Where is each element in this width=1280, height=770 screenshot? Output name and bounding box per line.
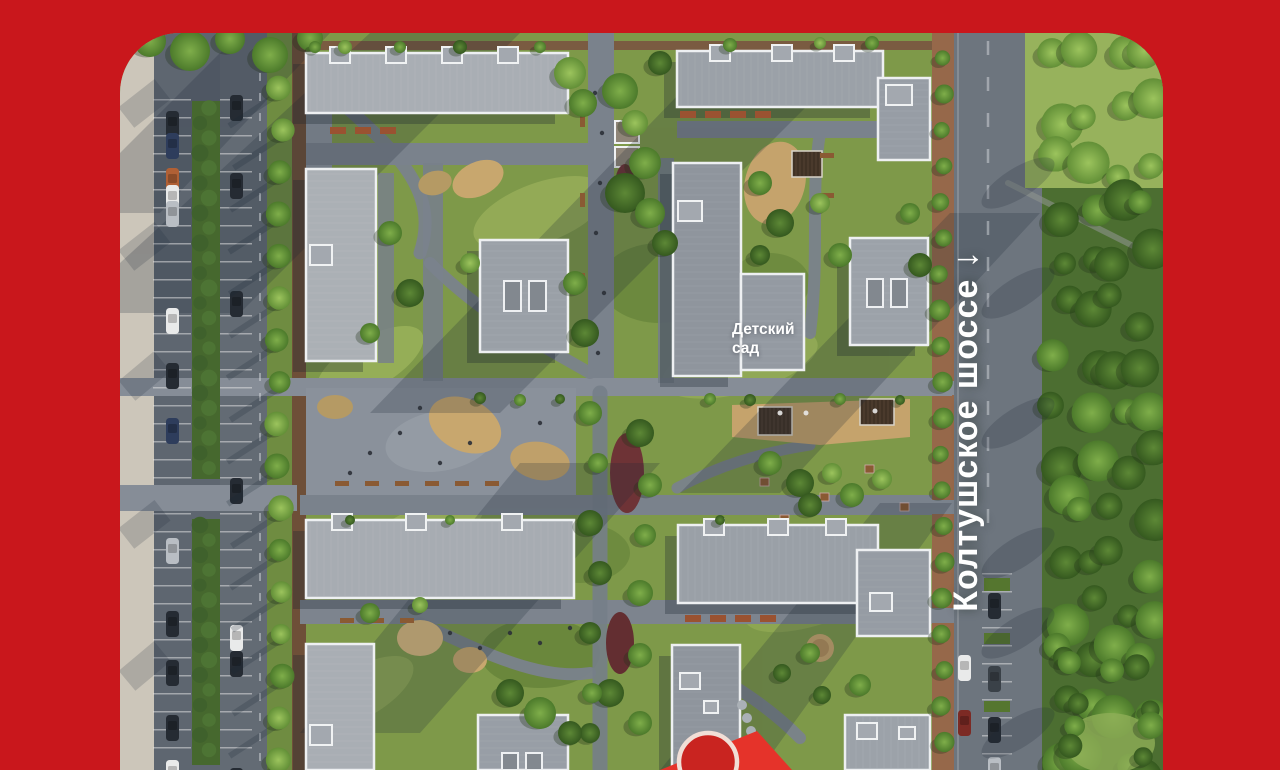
pin-head bbox=[679, 733, 737, 770]
red-frame: Колтушское шоссе ↓ Детский сад bbox=[0, 0, 1280, 770]
map-scene bbox=[120, 33, 1163, 770]
location-pin[interactable] bbox=[655, 720, 795, 770]
masterplan-map[interactable]: Колтушское шоссе ↓ Детский сад bbox=[120, 33, 1163, 770]
